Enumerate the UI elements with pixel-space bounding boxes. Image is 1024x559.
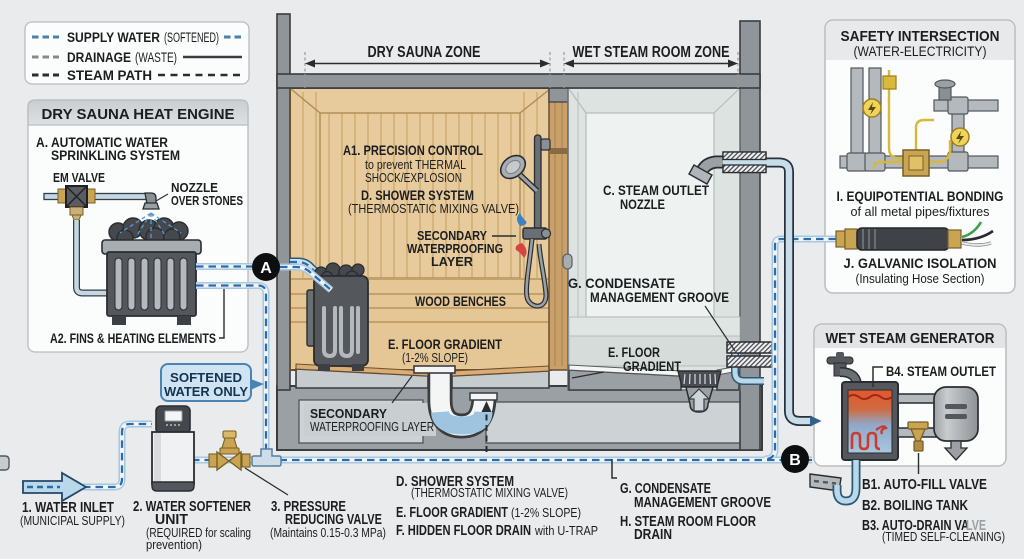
svg-text:SUPPLY WATER: SUPPLY WATER bbox=[67, 30, 160, 45]
svg-text:DRY SAUNA HEAT ENGINE: DRY SAUNA HEAT ENGINE bbox=[42, 106, 235, 123]
svg-text:F. HIDDEN FLOOR DRAIN: F. HIDDEN FLOOR DRAIN bbox=[396, 523, 531, 539]
svg-text:with U-TRAP: with U-TRAP bbox=[534, 524, 598, 538]
svg-text:J. GALVANIC ISOLATION: J. GALVANIC ISOLATION bbox=[844, 255, 997, 271]
svg-text:(1-2% SLOPE): (1-2% SLOPE) bbox=[511, 506, 581, 520]
svg-text:(THERMOSTATIC MIXING VALVE): (THERMOSTATIC MIXING VALVE) bbox=[411, 486, 568, 500]
svg-text:B4. STEAM OUTLET: B4. STEAM OUTLET bbox=[886, 363, 996, 379]
svg-text:I. EQUIPOTENTIAL BONDING: I. EQUIPOTENTIAL BONDING bbox=[837, 188, 1004, 204]
svg-text:D. SHOWER SYSTEM: D. SHOWER SYSTEM bbox=[361, 187, 474, 203]
svg-text:E. FLOOR GRADIENT: E. FLOOR GRADIENT bbox=[396, 505, 508, 521]
svg-text:(WASTE): (WASTE) bbox=[135, 50, 177, 65]
svg-text:MANAGEMENT GROOVE: MANAGEMENT GROOVE bbox=[590, 290, 729, 305]
svg-text:(Maintains 0.15-0.3 MPa): (Maintains 0.15-0.3 MPa) bbox=[270, 526, 386, 540]
svg-text:G. CONDENSATE: G. CONDENSATE bbox=[568, 276, 675, 291]
svg-text:(WATER-ELECTRICITY): (WATER-ELECTRICITY) bbox=[854, 44, 987, 59]
svg-text:SPRINKLING SYSTEM: SPRINKLING SYSTEM bbox=[51, 148, 180, 163]
svg-text:DRAINAGE: DRAINAGE bbox=[67, 50, 131, 65]
svg-text:E. FLOOR: E. FLOOR bbox=[608, 345, 660, 360]
svg-text:prevention): prevention) bbox=[146, 538, 202, 552]
svg-text:(1-2% SLOPE): (1-2% SLOPE) bbox=[402, 351, 468, 365]
svg-text:DRAIN: DRAIN bbox=[634, 527, 672, 543]
svg-text:OVER STONES: OVER STONES bbox=[171, 194, 243, 208]
svg-text:MANAGEMENT GROOVE: MANAGEMENT GROOVE bbox=[634, 495, 771, 511]
svg-text:LAYER: LAYER bbox=[431, 254, 474, 269]
svg-text:SAFETY INTERSECTION: SAFETY INTERSECTION bbox=[841, 28, 1000, 45]
svg-text:WET STEAM ROOM ZONE: WET STEAM ROOM ZONE bbox=[573, 44, 730, 61]
svg-text:NOZZLE: NOZZLE bbox=[171, 181, 218, 195]
svg-text:(THERMOSTATIC MIXING VALVE): (THERMOSTATIC MIXING VALVE) bbox=[348, 202, 519, 216]
svg-text:SECONDARY: SECONDARY bbox=[310, 407, 388, 421]
svg-text:B1. AUTO-FILL VALVE: B1. AUTO-FILL VALVE bbox=[862, 477, 987, 493]
svg-text:B2. BOILING TANK: B2. BOILING TANK bbox=[862, 498, 968, 514]
svg-text:WOOD BENCHES: WOOD BENCHES bbox=[415, 294, 506, 309]
svg-text:WATER ONLY: WATER ONLY bbox=[164, 384, 248, 399]
svg-text:DRY SAUNA ZONE: DRY SAUNA ZONE bbox=[368, 44, 481, 61]
svg-text:C. STEAM OUTLET: C. STEAM OUTLET bbox=[603, 183, 710, 198]
svg-text:EM VALVE: EM VALVE bbox=[53, 171, 105, 185]
svg-text:A: A bbox=[260, 260, 272, 277]
svg-text:2. WATER SOFTENER: 2. WATER SOFTENER bbox=[133, 499, 251, 515]
svg-text:SOFTENED: SOFTENED bbox=[170, 370, 242, 385]
svg-text:(TIMED SELF-CLEANING): (TIMED SELF-CLEANING) bbox=[882, 530, 1005, 544]
svg-text:WATERPROOFING LAYER: WATERPROOFING LAYER bbox=[310, 420, 434, 434]
svg-text:A2. FINS & HEATING ELEMENTS: A2. FINS & HEATING ELEMENTS bbox=[50, 330, 216, 346]
svg-text:WET STEAM GENERATOR: WET STEAM GENERATOR bbox=[826, 330, 995, 347]
svg-text:A1. PRECISION CONTROL: A1. PRECISION CONTROL bbox=[343, 142, 483, 158]
svg-text:B: B bbox=[789, 452, 801, 469]
svg-text:(MUNICIPAL SUPPLY): (MUNICIPAL SUPPLY) bbox=[20, 514, 125, 528]
svg-text:NOZZLE: NOZZLE bbox=[620, 197, 665, 212]
svg-text:(SOFTENED): (SOFTENED) bbox=[164, 30, 219, 45]
svg-text:to prevent THERMAL: to prevent THERMAL bbox=[365, 158, 466, 172]
svg-text:GRADIENT: GRADIENT bbox=[623, 359, 682, 374]
svg-text:E. FLOOR GRADIENT: E. FLOOR GRADIENT bbox=[388, 336, 502, 352]
svg-text:(Insulating Hose Section): (Insulating Hose Section) bbox=[856, 272, 985, 286]
svg-text:STEAM PATH: STEAM PATH bbox=[67, 68, 152, 83]
svg-text:of all metal pipes/fixtures: of all metal pipes/fixtures bbox=[851, 205, 990, 219]
svg-text:SHOCK/EXPLOSION: SHOCK/EXPLOSION bbox=[365, 171, 462, 185]
